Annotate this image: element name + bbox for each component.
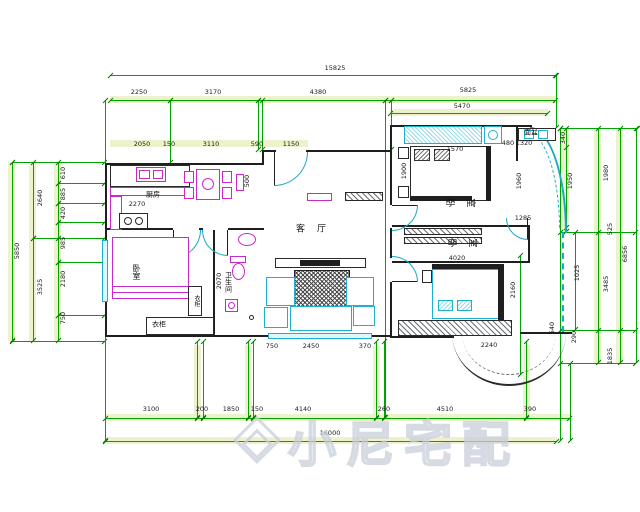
- dim-label: 1320: [516, 140, 533, 147]
- dim-label: 6856: [622, 246, 629, 263]
- dim-label: 1150: [283, 141, 300, 148]
- dim-label: 2250: [131, 89, 148, 96]
- dim-label: 985: [60, 237, 67, 249]
- room-label: 客厅: [296, 226, 338, 235]
- dim-label: 885: [60, 188, 67, 200]
- annotation-layer: 1582522503170438058255470205015031105901…: [0, 0, 640, 512]
- dim-label: 1900: [401, 163, 408, 180]
- dim-label: 750: [266, 343, 278, 350]
- dim-label: 1285: [515, 215, 532, 222]
- dim-label: 540: [549, 322, 556, 334]
- dim-label: 525: [607, 223, 614, 235]
- dim-label: 1850: [223, 406, 240, 413]
- dim-label: 2640: [37, 190, 44, 207]
- dim-label: 480: [502, 140, 514, 147]
- dim-label: 2240: [481, 342, 498, 349]
- room-label: 卧室: [440, 245, 482, 254]
- room-label: 面盆: [524, 130, 538, 137]
- room-label: 卧室: [132, 264, 140, 280]
- floor-plan-canvas: 1582522503170438058255470205015031105901…: [0, 0, 640, 512]
- dim-label: 4140: [295, 406, 312, 413]
- dim-label: 1980: [603, 165, 610, 182]
- dim-label: 1570: [447, 146, 464, 153]
- dim-label: 3110: [203, 141, 220, 148]
- dim-label: 420: [60, 207, 67, 219]
- dim-label: 390: [524, 406, 536, 413]
- dim-label: 590: [251, 141, 263, 148]
- dim-label: 750: [60, 312, 67, 324]
- dim-label: 5850: [14, 243, 21, 260]
- dim-label: 2070: [216, 273, 223, 290]
- room-label: 卫生间: [225, 272, 232, 293]
- dim-label: 1835: [607, 348, 614, 365]
- dim-label: 500: [244, 175, 251, 187]
- dim-label: 150: [251, 406, 263, 413]
- dim-label: 2450: [303, 343, 320, 350]
- dim-label: 2180: [60, 271, 67, 288]
- dim-label: 4380: [310, 89, 327, 96]
- room-label: 衣柜: [193, 295, 199, 307]
- dim-label: 3170: [205, 89, 222, 96]
- dim-label: 200: [196, 406, 208, 413]
- dim-label: 2050: [134, 141, 151, 148]
- room-label: 衣柜: [152, 322, 166, 329]
- dim-label: 3525: [37, 279, 44, 296]
- dim-label: 2270: [129, 201, 146, 208]
- dim-label: 3100: [143, 406, 160, 413]
- dim-label: 5470: [454, 103, 471, 110]
- dim-label: 1950: [567, 173, 574, 190]
- dim-label: 150: [163, 141, 175, 148]
- dim-label: 610: [60, 167, 67, 179]
- dim-label: 4510: [437, 406, 454, 413]
- dim-label: 2160: [510, 282, 517, 299]
- dim-label: 5825: [460, 87, 477, 94]
- room-label: 卧室: [438, 205, 480, 214]
- dim-label: 370: [359, 343, 371, 350]
- room-label: 厨房: [146, 192, 160, 199]
- dim-label: 1960: [516, 173, 523, 190]
- dim-label: 290: [571, 331, 578, 343]
- dim-label: 3485: [603, 276, 610, 293]
- dim-label: 340: [560, 132, 567, 144]
- dim-label: 260: [378, 406, 390, 413]
- dim-label: 16000: [320, 430, 341, 437]
- dim-label: 15825: [325, 65, 346, 72]
- dim-label: 1025: [574, 265, 581, 282]
